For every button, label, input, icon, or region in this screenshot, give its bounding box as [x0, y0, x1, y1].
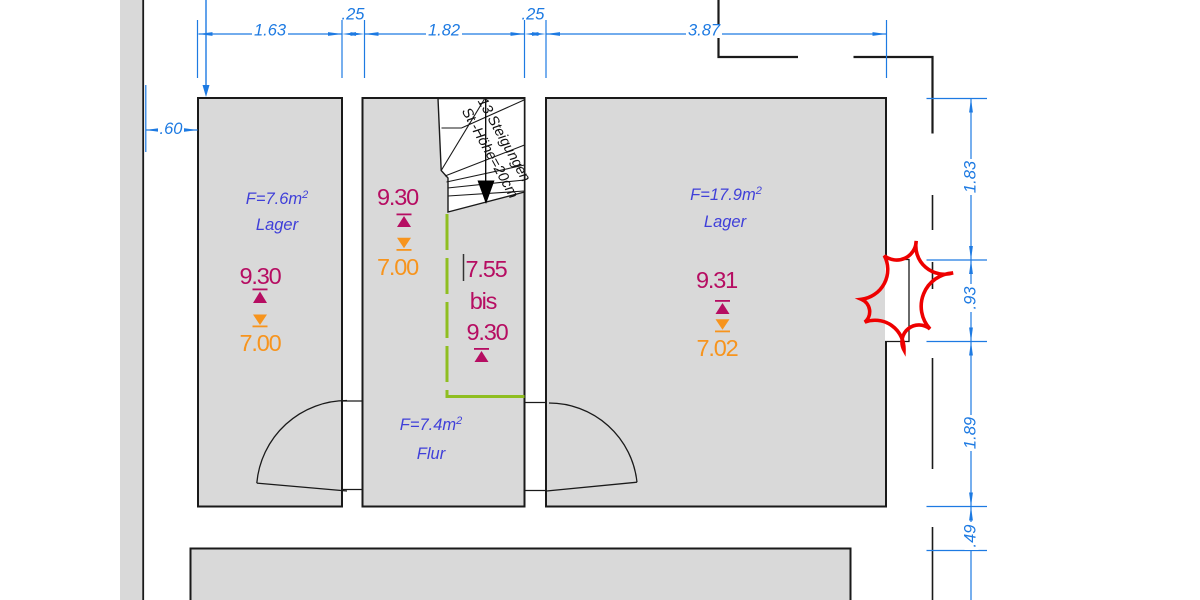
svg-text:F=17.9m2: F=17.9m2: [690, 185, 762, 204]
svg-text:1.89: 1.89: [962, 417, 980, 449]
svg-text:7.00: 7.00: [240, 330, 282, 356]
svg-text:7.02: 7.02: [697, 335, 738, 361]
svg-text:.25: .25: [522, 6, 546, 24]
svg-text:1.83: 1.83: [962, 160, 980, 193]
svg-text:F=7.6m2: F=7.6m2: [246, 189, 309, 208]
svg-text:.60: .60: [160, 120, 184, 138]
svg-text:7.55: 7.55: [466, 256, 508, 282]
svg-text:.25: .25: [342, 6, 366, 24]
svg-text:1.63: 1.63: [254, 22, 287, 40]
svg-text:9.30: 9.30: [240, 263, 282, 289]
svg-text:Lager: Lager: [704, 213, 748, 231]
svg-text:F=7.4m2: F=7.4m2: [400, 415, 463, 434]
svg-text:.93: .93: [962, 286, 980, 310]
svg-text:9.30: 9.30: [467, 319, 509, 345]
svg-text:1.82: 1.82: [428, 22, 460, 40]
svg-text:bis: bis: [470, 288, 497, 314]
svg-text:9.31: 9.31: [696, 267, 737, 293]
svg-text:7.00: 7.00: [377, 254, 419, 280]
svg-text:.49: .49: [962, 525, 980, 548]
svg-text:9.30: 9.30: [377, 184, 419, 210]
svg-text:Lager: Lager: [256, 216, 300, 234]
svg-text:3.87: 3.87: [688, 22, 721, 40]
svg-text:Flur: Flur: [417, 445, 447, 463]
